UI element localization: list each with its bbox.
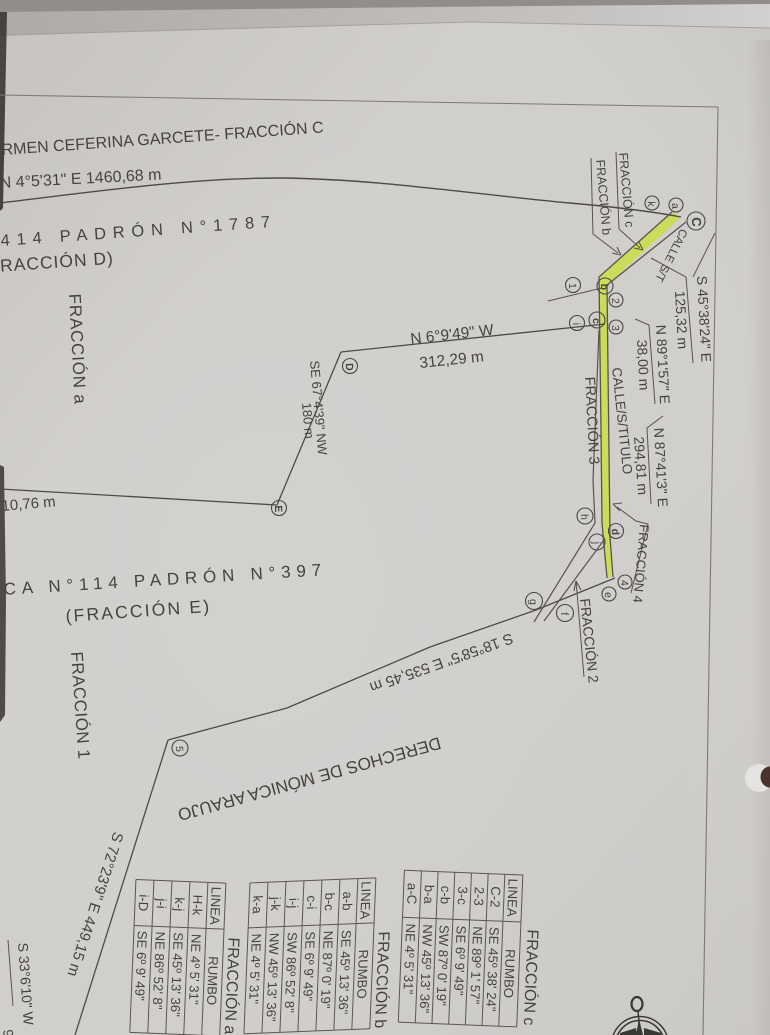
svg-text:3-c: 3-c [455,886,471,905]
svg-text:a-C: a-C [404,883,420,905]
svg-text:2-3: 2-3 [471,886,487,906]
svg-text:LINEA: LINEA [207,886,224,925]
svg-text:NE 4º 5' 31": NE 4º 5' 31" [246,933,264,1005]
svg-text:D: D [343,363,355,371]
svg-text:LINEA: LINEA [357,881,374,920]
svg-text:RUMBO: RUMBO [501,949,518,999]
svg-text:LINEA: LINEA [504,878,521,917]
svg-text:SE 6º 9' 49": SE 6º 9' 49" [451,925,469,996]
svg-text:C-2: C-2 [487,886,503,908]
svg-text:b-c: b-c [322,892,338,911]
svg-text:38,00 m: 38,00 m [634,339,653,390]
svg-text:RUMBO: RUMBO [204,956,221,1006]
svg-text:4: 4 [618,580,630,586]
svg-text:j-i: j-i [154,897,169,909]
svg-text:j-k: j-k [268,896,284,912]
svg-text:i-j: i-j [286,898,301,909]
svg-text:c: c [590,318,602,324]
svg-text:a-b: a-b [340,891,356,911]
svg-text:SE 6º 9' 49": SE 6º 9' 49" [132,931,150,1002]
svg-text:5: 5 [173,746,185,752]
svg-text:f: f [558,612,570,615]
svg-text:i: i [570,323,582,326]
svg-text:c-i: c-i [304,895,320,910]
svg-text:k-a: k-a [250,895,266,915]
svg-text:SE 6º 9' 49": SE 6º 9' 49" [300,931,318,1002]
svg-text:e: e [602,592,614,598]
svg-text:c-b: c-b [438,885,454,904]
svg-text:g: g [527,599,539,605]
svg-text:j: j [590,541,602,545]
svg-text:NE 86º 52' 8": NE 86º 52' 8" [150,931,168,1010]
svg-text:NE 4º 5' 31": NE 4º 5' 31" [400,923,418,995]
svg-text:d: d [609,528,621,535]
svg-text:a: a [669,203,681,209]
svg-text:i-D: i-D [136,894,152,911]
svg-text:1: 1 [566,283,578,289]
svg-text:NE 89º 1' 57": NE 89º 1' 57" [467,926,485,1005]
svg-text:b: b [598,283,610,290]
svg-text:180 m: 180 m [299,402,317,439]
svg-text:E: E [272,505,284,512]
svg-text:H-k: H-k [190,894,206,916]
svg-text:h: h [578,514,590,520]
svg-text:C: C [689,217,704,228]
svg-text:b-a: b-a [421,884,437,904]
svg-text:2: 2 [609,298,621,304]
svg-text:RUMBO: RUMBO [354,949,371,999]
svg-text:NE 87º 0' 19": NE 87º 0' 19" [318,930,336,1009]
svg-text:3: 3 [609,325,621,331]
svg-text:k-j: k-j [172,897,188,912]
svg-text:NE 4º 5' 31": NE 4º 5' 31" [186,934,204,1006]
svg-text:125,32 m: 125,32 m [672,290,691,349]
